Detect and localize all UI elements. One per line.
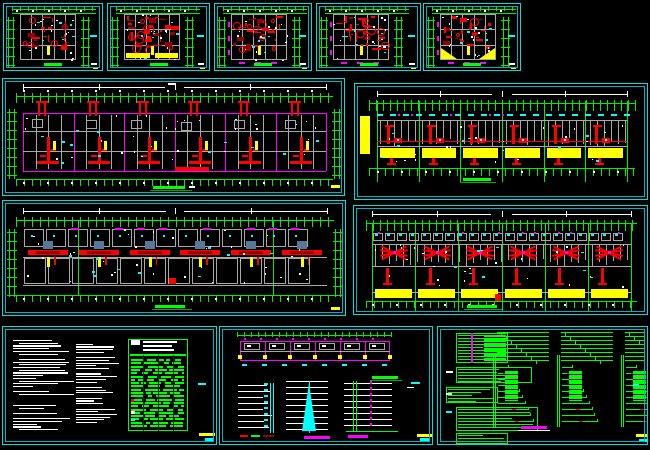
node-dot — [166, 32, 168, 34]
branch-line — [626, 367, 636, 368]
scale-mark — [636, 434, 648, 437]
dimension-tick — [439, 100, 440, 111]
note-text-line — [76, 363, 119, 364]
label-mark — [208, 247, 211, 249]
pipe-line — [153, 27, 155, 31]
unit-floor-plan-5[interactable] — [423, 3, 521, 71]
schedule-text — [448, 395, 472, 396]
dimension-tick — [501, 20, 510, 21]
dimension-tick — [208, 179, 209, 186]
grid-mark — [330, 50, 332, 55]
room-outline — [120, 258, 142, 284]
riser-pipe — [156, 257, 158, 265]
standard-floor-plumbing-plan[interactable] — [354, 83, 648, 200]
riser-pipe — [246, 102, 248, 116]
label-mark — [322, 364, 327, 366]
table-cell-text — [179, 389, 184, 391]
unit-floor-plan-2[interactable] — [107, 3, 210, 71]
dimension-tick — [380, 220, 381, 231]
riser-pipe — [145, 102, 147, 116]
table-cell-text — [145, 415, 154, 417]
table-cell-text — [131, 382, 139, 384]
dimension-tick — [537, 168, 538, 176]
pipe-line — [351, 34, 354, 36]
node-dot — [401, 247, 403, 249]
pipe-line — [276, 16, 283, 18]
dimension-tick — [474, 100, 475, 111]
dimension-line — [326, 17, 327, 67]
schedule-text — [448, 401, 476, 402]
axis-bubble — [484, 10, 486, 12]
node-dot — [177, 150, 179, 152]
grid-line — [74, 113, 75, 171]
dimension-tick — [64, 179, 65, 186]
node-dot — [475, 27, 477, 29]
pipe-line — [336, 23, 344, 25]
axis-bubble — [329, 10, 331, 12]
node-dot — [38, 243, 40, 245]
schedule-text — [458, 372, 497, 373]
dimension-tick — [148, 6, 149, 11]
wall-line — [23, 151, 326, 152]
pipe-line — [149, 19, 153, 21]
dimension-tick — [7, 175, 17, 176]
note-text-line — [13, 418, 70, 419]
level-label — [264, 383, 268, 385]
label-mark — [446, 371, 453, 373]
roof-plan-and-riser-diagrams[interactable] — [219, 326, 433, 445]
text-gap — [505, 394, 518, 395]
dimension-tick — [391, 332, 392, 337]
dimension-tick — [224, 179, 225, 186]
branch-end — [508, 365, 509, 368]
dimension-tick — [633, 168, 634, 176]
dimension-tick — [110, 29, 119, 30]
dimension-line — [224, 17, 225, 67]
note-text-line — [13, 391, 49, 392]
node-dot — [299, 249, 301, 251]
node-dot — [35, 24, 37, 26]
legend-bar — [263, 435, 274, 437]
dimension-tick — [56, 295, 57, 302]
axis-bubble — [545, 171, 547, 173]
grid-line — [631, 223, 632, 311]
dimension-tick — [471, 220, 472, 231]
dimension-line — [184, 87, 326, 88]
dimension-tick — [168, 217, 169, 227]
table-cell-text — [131, 376, 144, 378]
title-underline — [152, 309, 192, 310]
dimension-tick — [562, 220, 563, 231]
wall-line — [212, 115, 213, 169]
wall-line — [585, 245, 586, 260]
room-outline — [24, 229, 44, 247]
dimension-tick — [200, 179, 201, 186]
node-dot — [397, 139, 399, 141]
feeder-line — [497, 336, 549, 337]
node-dot — [564, 139, 566, 141]
dimension-tick — [526, 301, 527, 308]
dimension-tick — [558, 100, 559, 111]
dimension-tick — [7, 121, 17, 122]
label-mark — [70, 24, 73, 26]
pipe-arc — [128, 34, 135, 41]
table-cell-text — [175, 359, 180, 361]
dimension-tick — [7, 250, 17, 251]
node-dot — [503, 150, 505, 152]
grid-mark — [534, 232, 536, 234]
note-text-line — [19, 408, 44, 409]
room-outline — [48, 258, 70, 284]
node-dot — [68, 32, 70, 34]
view-marker — [633, 384, 639, 386]
table-cell-text — [131, 415, 143, 417]
title-underline — [464, 309, 502, 310]
label-mark — [198, 276, 201, 278]
dimension-tick — [502, 211, 503, 217]
floor-level-line — [344, 383, 392, 384]
pipe-line — [48, 27, 52, 29]
dimension-line — [428, 17, 429, 67]
axis-bubble — [425, 171, 427, 173]
meter-box — [195, 241, 205, 249]
fixture-mark — [165, 42, 172, 47]
dimension-tick — [232, 93, 233, 103]
label-mark — [596, 160, 599, 162]
axis-bubble — [143, 182, 145, 184]
node-dot — [385, 29, 387, 31]
shaft-highlight — [388, 355, 392, 359]
text-gap — [505, 399, 518, 400]
dimension-tick — [335, 332, 336, 337]
breaker-mark — [643, 421, 647, 422]
dimension-tick — [426, 47, 435, 48]
cable-band — [138, 251, 162, 254]
node-dot — [70, 52, 72, 54]
view-marker — [299, 35, 306, 37]
node-dot — [244, 282, 246, 284]
dimension-tick — [185, 38, 194, 39]
dimension-tick — [232, 179, 233, 186]
grid-mark — [203, 228, 211, 230]
view-marker — [197, 35, 204, 37]
axis-bubble — [168, 10, 170, 12]
branch-mark — [370, 399, 372, 402]
dimension-tick — [381, 6, 382, 11]
feeder-line — [497, 340, 549, 341]
text-gap — [569, 379, 582, 380]
riser-cap — [383, 283, 392, 285]
pipe-line — [460, 20, 462, 24]
dimension-line — [112, 17, 113, 67]
riser-pipe — [196, 102, 198, 116]
drain-base — [239, 161, 261, 164]
label-mark — [381, 33, 384, 35]
dimension-tick — [112, 179, 113, 186]
unit-floor-plan-3[interactable] — [214, 3, 312, 71]
node-dot — [467, 19, 469, 21]
schedule-text — [458, 375, 509, 376]
dimension-tick — [425, 100, 426, 111]
axis-bubble — [239, 182, 241, 184]
meter-box — [145, 241, 155, 249]
node-dot — [521, 258, 523, 260]
note-text-line — [13, 351, 69, 352]
dimension-tick — [628, 100, 629, 111]
schedule-text — [458, 441, 496, 442]
feeder-line — [561, 332, 613, 333]
pipe-line — [40, 155, 46, 157]
feeder-line — [625, 344, 644, 345]
table-cell-text — [145, 369, 152, 371]
design-notes-and-material-table[interactable] — [2, 326, 217, 445]
riser-cap — [289, 101, 301, 103]
label-mark — [495, 234, 498, 236]
ground-floor-electrical-plan[interactable] — [2, 200, 346, 316]
dimension-tick — [390, 301, 391, 308]
dimension-tick — [258, 332, 259, 337]
label-mark — [467, 31, 470, 33]
dimension-tick — [48, 217, 49, 227]
dimension-tick — [292, 56, 301, 57]
dimension-tick — [7, 157, 17, 158]
drawing-title-bar — [150, 63, 168, 66]
dimension-tick — [231, 6, 232, 11]
dimension-tick — [319, 47, 328, 48]
dimension-tick — [516, 100, 517, 111]
grid-mark — [618, 232, 620, 234]
dimension-tick — [523, 100, 524, 111]
drain-base — [189, 161, 211, 164]
label-mark — [559, 114, 565, 116]
view-marker — [508, 35, 515, 37]
node-dot — [150, 15, 152, 17]
dimension-tick — [349, 6, 350, 11]
dimension-tick — [426, 56, 435, 57]
node-dot — [374, 43, 376, 45]
label-mark — [117, 269, 120, 271]
table-column-line — [158, 355, 159, 431]
riser-cap — [387, 163, 396, 165]
pipe-line — [372, 48, 381, 50]
dimension-tick — [176, 179, 177, 186]
title-underline — [148, 67, 171, 68]
label-mark — [377, 114, 383, 116]
axis-bubble — [16, 10, 18, 12]
label-mark — [546, 114, 552, 116]
axis-bubble — [263, 298, 265, 300]
dimension-tick — [513, 168, 514, 176]
node-dot — [481, 250, 483, 252]
cad-canvas[interactable] — [0, 0, 650, 450]
table-cell-text — [161, 376, 171, 378]
riser-pipe — [206, 257, 208, 265]
table-cell-text — [163, 389, 177, 391]
level-label — [264, 413, 268, 415]
standard-floor-electrical-plan[interactable] — [353, 205, 648, 315]
table-cell-text — [131, 405, 138, 407]
node-dot — [167, 47, 169, 49]
label-mark — [37, 22, 40, 24]
axis-bubble — [167, 90, 169, 92]
node-dot — [27, 275, 29, 277]
table-cell-text — [131, 369, 140, 371]
legend-symbol — [131, 399, 134, 402]
label-mark — [372, 345, 376, 347]
label-mark — [262, 37, 265, 39]
node-dot — [56, 20, 58, 22]
label-mark — [590, 277, 593, 279]
node-dot — [121, 152, 123, 154]
dimension-tick — [566, 301, 567, 308]
wall-line — [499, 121, 500, 143]
table-cell-text — [131, 385, 143, 387]
dimension-tick — [248, 217, 249, 227]
note-text-line — [13, 375, 43, 376]
table-cell-text — [173, 395, 184, 397]
node-dot — [73, 252, 75, 254]
axis-bubble — [32, 10, 34, 12]
table-cell-text — [158, 379, 166, 381]
axis-bubble — [420, 304, 422, 306]
dimension-tick — [96, 217, 97, 227]
dimension-tick — [332, 148, 342, 149]
balcony-band — [422, 148, 457, 158]
label-mark — [555, 234, 558, 236]
dimension-line — [117, 17, 118, 67]
axis-bubble — [167, 298, 169, 300]
balcony-band — [418, 289, 455, 298]
drain-stack — [300, 137, 303, 163]
dimension-tick — [7, 259, 17, 260]
schedule-text — [448, 392, 481, 393]
dimension-tick — [332, 139, 342, 140]
pipe-line — [293, 155, 299, 157]
dimension-tick — [280, 217, 281, 227]
label-mark — [572, 114, 578, 116]
label-mark — [533, 114, 539, 116]
label-mark — [591, 234, 594, 236]
axis-bubble — [564, 304, 566, 306]
dimension-tick — [288, 217, 289, 227]
label-mark — [282, 364, 287, 366]
dimension-tick — [120, 93, 121, 103]
dimension-tick — [440, 91, 441, 97]
shaft-highlight — [306, 141, 309, 150]
grid-mark — [462, 232, 464, 234]
dimension-tick — [398, 301, 399, 308]
text-gap — [633, 389, 646, 390]
feeder-line — [625, 360, 644, 361]
dimension-tick — [136, 179, 137, 186]
dimension-tick — [40, 179, 41, 186]
breaker-mark — [512, 409, 516, 410]
dimension-tick — [333, 232, 343, 233]
unit-floor-plan-4[interactable] — [316, 3, 421, 71]
dimension-tick — [501, 38, 510, 39]
dimension-tick — [128, 179, 129, 186]
dimension-tick — [631, 211, 632, 217]
branch-mark — [370, 387, 372, 390]
label-mark — [581, 252, 584, 254]
dimension-tick — [286, 332, 287, 337]
label-mark — [176, 33, 179, 35]
dimension-tick — [296, 295, 297, 302]
axis-bubble — [361, 10, 363, 12]
dimension-tick — [292, 20, 301, 21]
dimension-tick — [112, 93, 113, 103]
label-mark — [41, 136, 44, 138]
dimension-tick — [152, 93, 153, 103]
dimension-tick — [304, 295, 305, 302]
wall-line — [263, 115, 264, 169]
shaft-highlight — [338, 355, 342, 359]
table-cell-text — [144, 362, 160, 364]
dimension-tick — [184, 217, 185, 227]
title-underline — [358, 67, 381, 68]
node-dot — [136, 264, 138, 266]
node-dot — [56, 158, 58, 160]
dimension-tick — [185, 29, 194, 30]
dimension-line — [339, 109, 340, 179]
dimension-line — [401, 17, 402, 67]
dimension-tick — [292, 38, 301, 39]
node-dot — [231, 246, 233, 248]
dimension-tick — [537, 100, 538, 111]
node-dot — [116, 115, 118, 117]
riser-cap — [555, 283, 564, 285]
node-dot — [166, 127, 168, 129]
dimension-tick — [510, 301, 511, 308]
note-text-line — [13, 372, 68, 373]
label-mark — [462, 140, 465, 142]
node-dot — [212, 282, 214, 284]
dimension-line — [23, 87, 165, 88]
table-cell-text — [131, 425, 147, 427]
dimension-tick — [319, 38, 328, 39]
dimension-tick — [319, 29, 328, 30]
dimension-line — [88, 17, 89, 67]
dimension-tick — [450, 220, 451, 231]
table-cell-text — [148, 395, 153, 397]
riser-cap — [510, 125, 519, 127]
dimension-tick — [328, 295, 329, 302]
view-marker — [408, 35, 415, 37]
node-dot — [268, 26, 270, 28]
node-dot — [172, 159, 174, 161]
axis-bubble — [287, 90, 289, 92]
node-dot — [281, 24, 283, 26]
dimension-tick — [598, 301, 599, 308]
node-dot — [40, 21, 42, 23]
dimension-tick — [64, 217, 65, 227]
ground-floor-plumbing-plan[interactable] — [2, 78, 345, 196]
dimension-tick — [64, 93, 65, 103]
branch-line — [626, 403, 648, 404]
dimension-tick — [492, 220, 493, 231]
dimension-tick — [271, 6, 272, 11]
label-mark — [397, 145, 400, 147]
axis-bubble — [372, 304, 374, 306]
node-dot — [372, 41, 374, 43]
label-mark — [141, 235, 143, 237]
power-distribution-system-diagrams[interactable] — [437, 326, 648, 445]
dimension-tick — [332, 157, 342, 158]
table-cell-text — [165, 372, 178, 374]
unit-floor-plan-1[interactable] — [3, 3, 103, 71]
grid-mark — [291, 228, 299, 230]
dimension-tick — [272, 295, 273, 302]
